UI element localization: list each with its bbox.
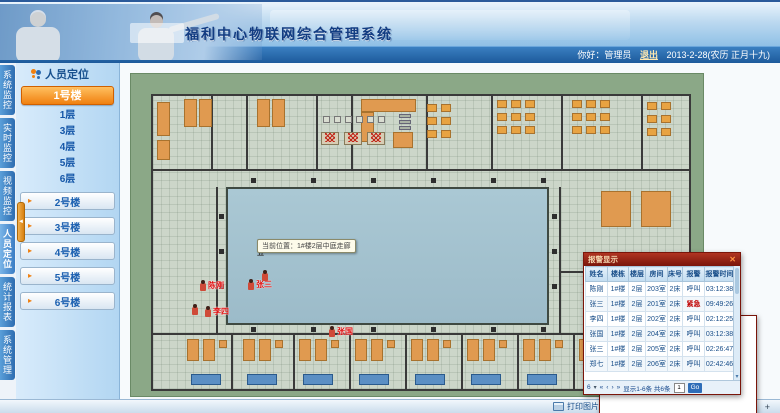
sq-shape [356, 116, 363, 123]
desk-shape [525, 113, 535, 121]
desk-shape [511, 113, 521, 121]
last-page-button[interactable]: » [617, 384, 621, 391]
header-banner: 福利中心物联网综合管理系统 [0, 0, 780, 46]
alarm-col-楼层: 楼层 [629, 267, 646, 282]
desk-shape [441, 104, 451, 112]
win-shape [415, 374, 445, 385]
wall-shape [491, 94, 493, 169]
col-shape [251, 327, 256, 332]
go-button[interactable]: Go [688, 383, 703, 393]
col-shape [491, 178, 496, 183]
alarm-cell: 张国 [586, 327, 608, 342]
col-shape [552, 284, 557, 289]
alarm-cell: 1#楼 [608, 297, 629, 312]
alarm-cell: 呼叫 [683, 357, 705, 372]
panel-header: 人员定位 [16, 63, 119, 84]
desk-shape [511, 100, 521, 108]
person-marker[interactable] [191, 304, 199, 315]
desk-shape [441, 117, 451, 125]
alarm-cell: 1#楼 [608, 357, 629, 372]
fur-shape [539, 339, 551, 361]
col-shape [311, 327, 316, 332]
page-size-caret-icon[interactable]: ▾ [594, 384, 597, 391]
person-head-icon [206, 306, 210, 310]
person-body-icon [262, 273, 268, 281]
desk-shape [441, 130, 451, 138]
wall-shape [559, 187, 561, 335]
fur-shape [315, 339, 327, 361]
alarm-cell: 02:26:47 [705, 342, 735, 357]
scrollbar-thumb[interactable] [735, 268, 739, 294]
desk-shape [586, 100, 596, 108]
person-name-label: 李四 [213, 306, 229, 317]
fur-shape [199, 99, 212, 127]
page-size-value: 6 [587, 384, 591, 391]
desk-shape [572, 100, 582, 108]
desk-shape [427, 117, 437, 125]
alarm-cell: 2层 [629, 297, 646, 312]
desk-shape [661, 102, 671, 110]
fur-shape [259, 339, 271, 361]
desk-shape [525, 126, 535, 134]
col-shape [219, 249, 224, 254]
fur-shape [523, 339, 535, 361]
alarm-row[interactable]: 张国1#楼2层204室2床呼叫03:12:38 [586, 327, 735, 342]
person-marker[interactable]: 陈刚 [199, 280, 207, 291]
alarm-cell: 203室 [646, 282, 668, 297]
alarm-cell: 03:12:38 [705, 327, 735, 342]
wall-shape [641, 94, 643, 169]
col-shape [541, 327, 546, 332]
alarm-table: 姓名楼栋楼层房间床号报警报警时间 陈刚1#楼2层203室2床呼叫03:12:38… [585, 266, 735, 372]
desk-shape [572, 113, 582, 121]
desk-shape [511, 126, 521, 134]
alarm-col-床号: 床号 [668, 267, 683, 282]
desk-shape [586, 126, 596, 134]
print-label: 打印图片 [567, 401, 599, 412]
alarm-cell: 2床 [668, 297, 683, 312]
desk-shape [600, 100, 610, 108]
user-greeting: 你好：管理员 [577, 50, 631, 60]
fur-shape [555, 340, 563, 348]
fur-shape [184, 99, 197, 127]
building-label: 2号楼 [55, 194, 81, 209]
prev-page-button[interactable]: ‹ [606, 384, 608, 391]
pagination-info: 显示1-6条 共6条 [623, 383, 670, 393]
desk-shape [497, 126, 507, 134]
person-head-icon [193, 304, 197, 308]
col-shape [371, 178, 376, 183]
desk-shape [572, 126, 582, 134]
alarm-col-报警: 报警 [683, 267, 705, 282]
first-page-button[interactable]: « [600, 384, 604, 391]
wall-shape [316, 94, 318, 169]
wall-shape [231, 333, 233, 391]
fur-shape [272, 99, 285, 127]
col-shape [219, 214, 224, 219]
person-body-icon [192, 307, 198, 315]
water-shape [226, 187, 549, 325]
person-body-icon [248, 282, 254, 290]
desk-shape [661, 128, 671, 136]
zoom-in-button[interactable]: + [765, 402, 770, 412]
desk-shape [497, 113, 507, 121]
person-head-icon [330, 326, 334, 330]
building-label: 3号楼 [55, 219, 81, 234]
desk-shape [647, 128, 657, 136]
person-name-label: 张国 [337, 326, 353, 337]
alarm-cell: 张三 [586, 342, 608, 357]
date-text: 2013-2-28(农历 正月十九) [666, 50, 770, 60]
wall-shape [151, 169, 691, 171]
app-title: 福利中心物联网综合管理系统 [185, 24, 393, 44]
alarm-col-报警时间: 报警时间 [705, 267, 735, 282]
building-button-6号楼[interactable]: ▸6号楼 [20, 292, 115, 310]
page-input[interactable] [674, 383, 685, 393]
desk-shape [525, 100, 535, 108]
alarm-cell: 201室 [646, 297, 668, 312]
rad-shape [399, 120, 411, 124]
desk-shape [427, 104, 437, 112]
alarm-cell: 1#楼 [608, 327, 629, 342]
nav-tabstrip: 系统监控实时监控视频监控人员定位统计报表系统管理 [0, 63, 16, 399]
building-button-4号楼[interactable]: ▸4号楼 [20, 242, 115, 260]
arrow-icon: ▸ [28, 294, 32, 308]
col-shape [541, 178, 546, 183]
wall-shape [561, 94, 563, 169]
desk-shape [647, 102, 657, 110]
alarm-panel: 报警显示 ✕ 姓名楼栋楼层房间床号报警报警时间 陈刚1#楼2层203室2床呼叫0… [583, 252, 741, 395]
building-button-active[interactable]: 1号楼 [21, 86, 114, 105]
arrow-icon: ▸ [28, 244, 32, 258]
fur-shape [443, 340, 451, 348]
alarm-scrollbar[interactable]: ▾ [733, 266, 740, 380]
alarm-titlebar[interactable]: 报警显示 ✕ [584, 253, 740, 266]
fur-shape [257, 99, 270, 127]
alarm-row[interactable]: 张三1#楼2层201室2床紧急09:49:26 [586, 297, 735, 312]
wall-shape [461, 333, 463, 391]
fur-shape [499, 340, 507, 348]
nav-tab-视频监控[interactable]: 视频监控 [0, 171, 15, 221]
alarm-table-body: 陈刚1#楼2层203室2床呼叫03:12:38张三1#楼2层201室2床紧急09… [586, 282, 735, 372]
fur-shape [427, 339, 439, 361]
building-button-5号楼[interactable]: ▸5号楼 [20, 267, 115, 285]
fur-shape [467, 339, 479, 361]
alarm-cell: 02:12:25 [705, 312, 735, 327]
fur-shape [387, 340, 395, 348]
alarm-cell: 陈刚 [586, 282, 608, 297]
alarm-cell: 2层 [629, 327, 646, 342]
fur-shape [219, 340, 227, 348]
alarm-cell: 205室 [646, 342, 668, 357]
floor-list: 1层2层3层4层5层6层 [16, 108, 119, 188]
nav-tab-统计报表[interactable]: 统计报表 [0, 277, 15, 327]
sidebar-panel: 人员定位 1号楼 1层2层3层4层5层6层 ▸2号楼▸3号楼▸4号楼▸5号楼▸6… [16, 63, 120, 399]
person-name-label: 陈刚 [208, 280, 224, 291]
logout-link[interactable]: 退出 [640, 50, 658, 60]
sq-shape [323, 116, 330, 123]
censor-blur-patch [130, 23, 184, 43]
person-marker[interactable] [261, 270, 269, 281]
wall-shape [517, 333, 519, 391]
fur-shape [157, 140, 170, 160]
alarm-cell: 206室 [646, 357, 668, 372]
tooltip-text: 当前位置：1#楼2层中庭走廊 [257, 239, 356, 253]
fur-shape [355, 339, 367, 361]
col-shape [552, 214, 557, 219]
col-shape [371, 327, 376, 332]
fur-shape [361, 99, 416, 112]
alarm-row[interactable]: 郑七1#楼2层206室2床呼叫02:42:46 [586, 357, 735, 372]
floor-item-4层[interactable]: 4层 [16, 140, 119, 156]
desk-shape [497, 100, 507, 108]
desk-shape [600, 126, 610, 134]
alarm-row[interactable]: 李四1#楼2层202室2床呼叫02:12:25 [586, 312, 735, 327]
arrow-icon: ▸ [28, 219, 32, 233]
alarm-cell: 1#楼 [608, 282, 629, 297]
alarm-cell: 呼叫 [683, 282, 705, 297]
wall-shape [405, 333, 407, 391]
alarm-cell: 李四 [586, 312, 608, 327]
fur-shape [299, 339, 311, 361]
fur-shape [641, 191, 671, 227]
win-shape [359, 374, 389, 385]
alarm-cell: 204室 [646, 327, 668, 342]
nav-tab-人员定位[interactable]: 人员定位 [0, 224, 15, 274]
nav-tab-实时监控[interactable]: 实时监控 [0, 118, 15, 168]
people-icon [30, 69, 42, 79]
building-list: ▸2号楼▸3号楼▸4号楼▸5号楼▸6号楼 [16, 192, 119, 310]
alarm-col-楼栋: 楼栋 [608, 267, 629, 282]
alarm-cell: 2层 [629, 357, 646, 372]
person-marker[interactable]: 李四 [204, 306, 212, 317]
fur-shape [187, 339, 199, 361]
arrow-icon: ▸ [28, 269, 32, 283]
floor-item-1层[interactable]: 1层 [16, 108, 119, 124]
sq-shape [334, 116, 341, 123]
desk-shape [647, 115, 657, 123]
fur-shape [275, 340, 283, 348]
win-shape [247, 374, 277, 385]
fur-shape [243, 339, 255, 361]
wall-shape [246, 94, 248, 169]
person-head-icon [201, 280, 205, 284]
person-head-icon [263, 270, 267, 274]
building-label: 5号楼 [55, 269, 81, 284]
col-shape [431, 327, 436, 332]
nav-tab-系统管理[interactable]: 系统管理 [0, 330, 15, 380]
floor-item-3层[interactable]: 3层 [16, 124, 119, 140]
sidebar-collapse-handle[interactable]: ◄ [17, 202, 25, 242]
printer-icon [553, 402, 564, 411]
alarm-cell: 1#楼 [608, 342, 629, 357]
col-shape [491, 327, 496, 332]
desk-shape [427, 130, 437, 138]
alarm-col-房间: 房间 [646, 267, 668, 282]
building-button-2号楼[interactable]: ▸2号楼 [20, 192, 115, 210]
alarm-cell: 呼叫 [683, 327, 705, 342]
person-body-icon [329, 329, 335, 337]
person-body-icon [200, 283, 206, 291]
plant-shape [371, 133, 381, 142]
building-label: 4号楼 [55, 244, 81, 259]
alarm-row[interactable]: 张三1#楼2层205室2床呼叫02:26:47 [586, 342, 735, 357]
alarm-col-姓名: 姓名 [586, 267, 608, 282]
person-marker[interactable]: 张三 [247, 279, 255, 290]
wall-shape [293, 333, 295, 391]
alarm-cell: 2层 [629, 282, 646, 297]
alarm-cell: 2床 [668, 342, 683, 357]
print-button[interactable]: 打印图片 [553, 401, 599, 412]
nav-tab-系统监控[interactable]: 系统监控 [0, 65, 15, 115]
plant-shape [325, 133, 335, 142]
wall-shape [573, 333, 575, 391]
building-label: 6号楼 [55, 294, 81, 309]
close-icon[interactable]: ✕ [729, 255, 736, 265]
desk-shape [661, 115, 671, 123]
win-shape [527, 374, 557, 385]
fur-shape [331, 340, 339, 348]
person-marker[interactable]: 张国 [328, 326, 336, 337]
arrow-icon: ▸ [28, 194, 32, 208]
rad-shape [399, 126, 411, 130]
alarm-cell: 呼叫 [683, 342, 705, 357]
alarm-cell: 02:42:46 [705, 357, 735, 372]
fur-shape [411, 339, 423, 361]
alarm-cell: 2层 [629, 342, 646, 357]
fur-shape [601, 191, 631, 227]
alarm-cell: 2床 [668, 282, 683, 297]
alarm-cell: 紧急 [683, 297, 705, 312]
rad-shape [399, 114, 411, 118]
fur-shape [203, 339, 215, 361]
desk-shape [600, 113, 610, 121]
alarm-header-row: 姓名楼栋楼层房间床号报警报警时间 [586, 267, 735, 282]
floor-item-6层[interactable]: 6层 [16, 172, 119, 188]
person-body-icon [205, 309, 211, 317]
alarm-cell: 呼叫 [683, 312, 705, 327]
desk-shape [586, 113, 596, 121]
alarm-cell: 2床 [668, 357, 683, 372]
col-shape [311, 178, 316, 183]
alarm-cell: 郑七 [586, 357, 608, 372]
alarm-cell: 202室 [646, 312, 668, 327]
alarm-pagination: 6 ▾ « ‹ › » 显示1-6条 共6条 Go [584, 380, 740, 394]
alarm-cell: 03:12:38 [705, 282, 735, 297]
sq-shape [378, 116, 385, 123]
plant-shape [348, 133, 358, 142]
win-shape [303, 374, 333, 385]
alarm-cell: 2床 [668, 312, 683, 327]
fur-shape [157, 102, 170, 136]
col-shape [431, 178, 436, 183]
sq-shape [367, 116, 374, 123]
win-shape [191, 374, 221, 385]
win-shape [471, 374, 501, 385]
alarm-cell: 1#楼 [608, 312, 629, 327]
fur-shape [371, 339, 383, 361]
alarm-title: 报警显示 [588, 254, 618, 265]
panel-title: 人员定位 [45, 66, 89, 82]
fur-shape [393, 132, 413, 148]
alarm-cell: 2层 [629, 312, 646, 327]
app-window: 福利中心物联网综合管理系统 你好：管理员 退出 2013-2-28(农历 正月十… [0, 0, 780, 413]
col-shape [552, 249, 557, 254]
alarm-cell: 2床 [668, 327, 683, 342]
alarm-row[interactable]: 陈刚1#楼2层203室2床呼叫03:12:38 [586, 282, 735, 297]
person-head-icon [249, 279, 253, 283]
wall-shape [349, 333, 351, 391]
col-shape [251, 178, 256, 183]
alarm-cell: 张三 [586, 297, 608, 312]
sq-shape [345, 116, 352, 123]
fur-shape [483, 339, 495, 361]
next-page-button[interactable]: › [611, 384, 613, 391]
building-button-3号楼[interactable]: ▸3号楼 [20, 217, 115, 235]
alarm-cell: 09:49:26 [705, 297, 735, 312]
floor-item-5层[interactable]: 5层 [16, 156, 119, 172]
